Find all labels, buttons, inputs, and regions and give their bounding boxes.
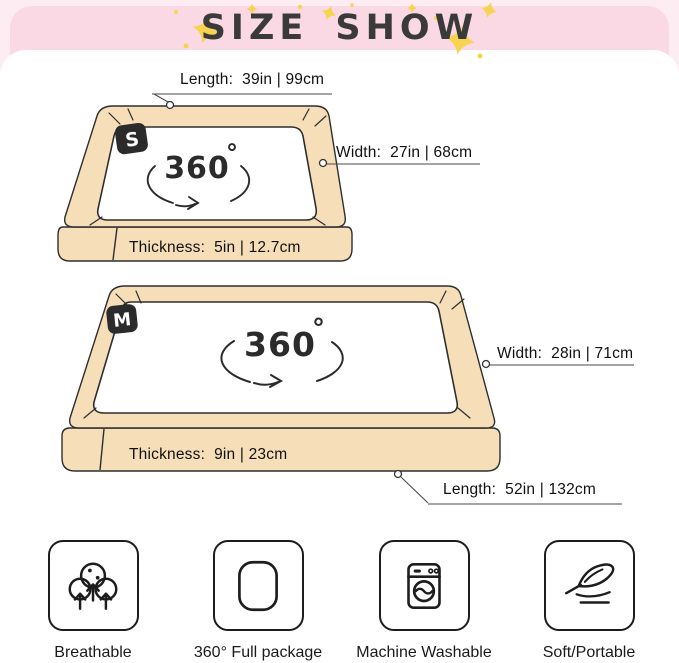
size-show-infographic: SIZE SHOW 360 ° S xyxy=(0,0,679,663)
bed-m-width-label: Width: 28in | 71cm xyxy=(497,345,633,363)
breathable-icon xyxy=(62,555,124,617)
degree-symbol-icon: ° xyxy=(226,139,238,167)
length-s-connector xyxy=(152,94,332,102)
machine-washable-icon xyxy=(393,555,455,617)
feature-label: Soft/Portable xyxy=(543,644,636,662)
size-badge-s: S xyxy=(114,122,149,155)
feature-box xyxy=(379,540,470,631)
length-m-anchor-dot xyxy=(395,471,402,478)
full-package-icon xyxy=(227,555,289,617)
bed-m-thickness-label: Thickness: 9in | 23cm xyxy=(129,446,287,464)
feature-box xyxy=(544,540,635,631)
feature-machine-washable: Machine Washable xyxy=(364,540,484,662)
width-m-anchor-dot xyxy=(483,361,490,368)
feature-box xyxy=(213,540,304,631)
bed-s-width-label: Width: 27in | 68cm xyxy=(336,144,472,162)
width-s-anchor-dot xyxy=(320,160,327,167)
feature-breathable: Breathable xyxy=(33,540,153,662)
rotation-degrees-s: 360 xyxy=(164,151,230,186)
size-badge-m-letter: M xyxy=(112,309,132,332)
length-s-anchor-dot xyxy=(167,102,174,109)
feature-label: Breathable xyxy=(54,644,131,662)
degree-symbol-icon: ° xyxy=(312,314,325,344)
feature-box xyxy=(48,540,139,631)
feature-soft-portable: Soft/Portable xyxy=(529,540,649,662)
feature-label: 360° Full package xyxy=(194,644,322,662)
bed-m-length-label: Length: 52in | 132cm xyxy=(443,481,596,499)
bed-s-length-label: Length: 39in | 99cm xyxy=(180,71,324,89)
soft-portable-icon xyxy=(558,555,620,617)
size-badge-m: M xyxy=(106,304,139,335)
bed-s-thickness-label: Thickness: 5in | 12.7cm xyxy=(129,239,301,257)
rotation-degrees-m: 360 xyxy=(244,325,316,364)
feature-full-package: 360° Full package xyxy=(198,540,318,662)
feature-label: Machine Washable xyxy=(356,644,491,662)
